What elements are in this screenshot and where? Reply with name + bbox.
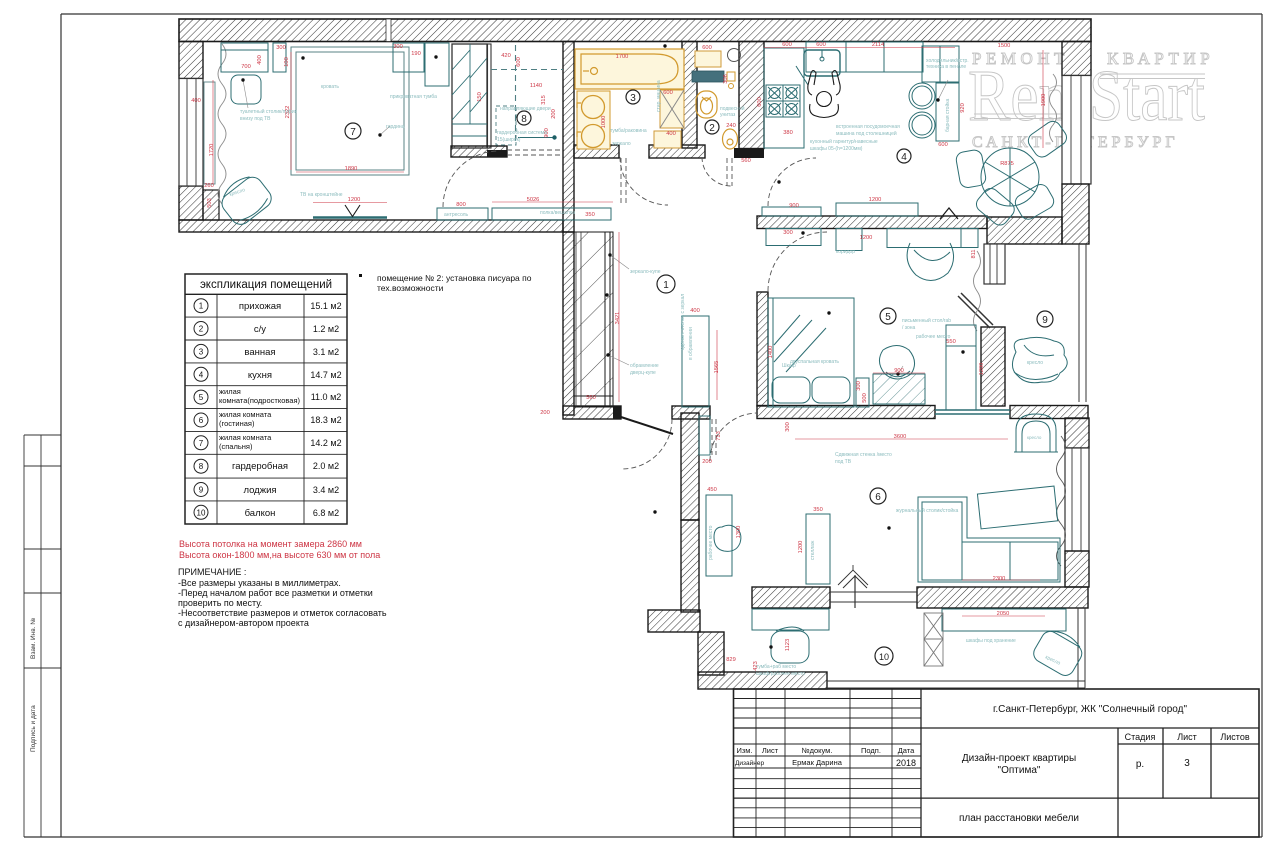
svg-text:Дата: Дата — [898, 746, 915, 755]
svg-text:3421: 3421 — [615, 312, 621, 325]
svg-text:560: 560 — [741, 158, 751, 164]
svg-text:1300: 1300 — [736, 526, 742, 539]
svg-text:3: 3 — [1184, 758, 1190, 769]
svg-text:300: 300 — [276, 45, 286, 51]
svg-text:260: 260 — [204, 183, 214, 189]
svg-text:план расстановки мебели: план расстановки мебели — [959, 812, 1079, 824]
svg-text:балкон: балкон — [245, 508, 276, 519]
svg-text:400: 400 — [191, 98, 201, 104]
svg-text:обрамление: обрамление — [630, 363, 659, 369]
svg-text:Взам. Инв. №: Взам. Инв. № — [30, 618, 37, 659]
svg-text:1500: 1500 — [998, 43, 1011, 49]
svg-text:600: 600 — [663, 90, 673, 96]
svg-text:проверить по месту.: проверить по месту. — [178, 598, 262, 608]
svg-text:2018: 2018 — [896, 758, 916, 768]
svg-text:350: 350 — [585, 212, 595, 218]
svg-text:рабочее место: рабочее место — [708, 525, 714, 560]
svg-text:306: 306 — [723, 74, 729, 84]
svg-text:туалетный столик/пуфик: туалетный столик/пуфик — [240, 108, 298, 115]
svg-text:300: 300 — [785, 422, 791, 432]
svg-text:Высота потолка на момент замер: Высота потолка на момент замера 2860 мм — [179, 539, 362, 549]
svg-text:кухонный гарнитур/навесные: кухонный гарнитур/навесные — [810, 138, 878, 145]
svg-text:5: 5 — [199, 393, 204, 402]
svg-text:барная стойка: барная стойка — [944, 98, 951, 132]
svg-text:помещение № 2: установка писуа: помещение № 2: установка писуара по — [377, 273, 532, 283]
svg-text:журнальный столик/стойка: журнальный столик/стойка — [896, 507, 959, 514]
svg-text:техника в пенале: техника в пенале — [926, 64, 966, 70]
svg-text:503: 503 — [207, 198, 213, 208]
svg-text:под ТВ: под ТВ — [835, 459, 852, 465]
svg-text:1720: 1720 — [209, 144, 215, 157]
svg-text:Лист: Лист — [1177, 732, 1197, 742]
svg-text:2.0 м2: 2.0 м2 — [313, 461, 339, 471]
svg-text:300: 300 — [783, 230, 793, 236]
svg-text:стеллаж: стеллаж — [810, 540, 816, 560]
svg-text:полка/вешалка: полка/вешалка — [540, 210, 575, 216]
svg-text:Подпись и дата: Подпись и дата — [30, 705, 37, 752]
svg-text:7: 7 — [350, 127, 356, 138]
svg-text:400: 400 — [257, 55, 263, 65]
svg-text:100: 100 — [284, 57, 290, 67]
svg-text:лоджия: лоджия — [243, 485, 276, 496]
svg-text:240: 240 — [726, 123, 736, 129]
svg-text:300: 300 — [856, 381, 862, 391]
svg-text:14.7 м2: 14.7 м2 — [310, 370, 341, 380]
svg-text:с/у: с/у — [254, 324, 266, 335]
svg-text:коридор: коридор — [836, 249, 855, 255]
svg-text:1200: 1200 — [869, 197, 882, 203]
svg-text:машина под столешницей: машина под столешницей — [836, 130, 897, 137]
svg-text:1200: 1200 — [860, 235, 873, 241]
svg-text:стир. машина: стир. машина — [656, 80, 662, 112]
svg-text:11.0 м2: 11.0 м2 — [311, 392, 342, 402]
svg-text:комната(подростковая): комната(подростковая) — [219, 396, 301, 405]
svg-text:Изм.: Изм. — [736, 746, 752, 755]
svg-text:600: 600 — [516, 57, 522, 67]
svg-text:350: 350 — [813, 507, 823, 513]
svg-text:3: 3 — [630, 93, 636, 104]
svg-text:шкаф/рабочее место: шкаф/рабочее место — [756, 671, 805, 677]
svg-text:1700: 1700 — [616, 54, 629, 60]
svg-text:-Перед началом работ все разме: -Перед началом работ все разметки и отме… — [178, 588, 373, 598]
svg-text:5: 5 — [885, 312, 891, 323]
svg-text:Сдвижная стенка /место: Сдвижная стенка /место — [835, 452, 892, 458]
svg-text:в обрамлении: в обрамлении — [688, 327, 694, 360]
svg-text:380: 380 — [783, 130, 793, 136]
svg-text:10: 10 — [197, 508, 206, 517]
svg-text:1400: 1400 — [768, 346, 774, 359]
svg-text:713: 713 — [716, 431, 722, 441]
svg-text:"Оптима": "Оптима" — [998, 765, 1041, 776]
svg-text:8: 8 — [199, 462, 204, 471]
svg-text:150: 150 — [477, 92, 483, 102]
svg-text:15(широк): 15(широк) — [497, 137, 521, 143]
svg-text:200: 200 — [540, 410, 550, 416]
svg-text:1900: 1900 — [1041, 94, 1047, 107]
svg-text:700: 700 — [241, 64, 251, 70]
svg-text:кресло: кресло — [1027, 435, 1042, 440]
svg-text:-Все размеры указаны в миллиме: -Все размеры указаны в миллиметрах. — [178, 578, 341, 588]
svg-text:шкафы под хранение: шкафы под хранение — [966, 638, 1016, 644]
svg-text:190: 190 — [411, 51, 421, 57]
svg-text:Дизайнер: Дизайнер — [735, 759, 764, 767]
svg-text:тех.возможности: тех.возможности — [377, 283, 444, 293]
svg-text:Подп.: Подп. — [861, 746, 881, 755]
svg-text:зеркало: зеркало — [612, 141, 631, 147]
svg-text:6.8 м2: 6.8 м2 — [313, 508, 339, 518]
svg-text:1123: 1123 — [785, 639, 791, 651]
svg-text:шкафы 05-(h=1200мм): шкафы 05-(h=1200мм) — [810, 146, 863, 152]
svg-text:прикроватная тумба: прикроватная тумба — [390, 94, 437, 100]
svg-text:дверц-купе: дверц-купе — [630, 370, 656, 376]
svg-text:1140: 1140 — [530, 83, 542, 89]
svg-text:1200: 1200 — [979, 363, 985, 376]
svg-text:420: 420 — [501, 53, 511, 59]
svg-text:жилая комната: жилая комната — [219, 410, 272, 419]
svg-text:600: 600 — [757, 97, 763, 107]
svg-text:р.: р. — [1136, 759, 1144, 770]
svg-text:подвесной: подвесной — [720, 105, 745, 112]
svg-text:унитаз: унитаз — [720, 112, 736, 118]
svg-text:кухня: кухня — [248, 370, 272, 381]
svg-text:315: 315 — [541, 95, 547, 105]
svg-text:рабочее место: рабочее место — [916, 334, 951, 340]
svg-text:9: 9 — [1042, 315, 1048, 326]
svg-text:жилая: жилая — [219, 387, 241, 396]
svg-text:Стадия: Стадия — [1125, 732, 1156, 742]
svg-text:8: 8 — [521, 114, 527, 125]
svg-text:600: 600 — [938, 142, 948, 148]
svg-text:9: 9 — [199, 486, 204, 495]
svg-text:10: 10 — [879, 652, 889, 662]
svg-text:№докум.: №докум. — [802, 746, 833, 755]
svg-text:1200: 1200 — [798, 541, 804, 554]
svg-text:900: 900 — [789, 203, 799, 209]
svg-text:1.2 м2: 1.2 м2 — [313, 324, 339, 334]
svg-text:2114: 2114 — [872, 42, 884, 48]
svg-text:400: 400 — [666, 131, 676, 137]
svg-text:1000: 1000 — [601, 116, 607, 129]
svg-text:Start: Start — [1089, 55, 1205, 136]
svg-text:Высота окон-1800 мм,на высоте: Высота окон-1800 мм,на высоте 630 мм от … — [179, 550, 380, 560]
svg-text:тумба/раковина: тумба/раковина — [610, 128, 647, 134]
svg-text:600: 600 — [782, 42, 792, 48]
svg-text:300: 300 — [393, 44, 403, 50]
svg-text:г.Санкт-Петербург, ЖК "Солнечн: г.Санкт-Петербург, ЖК "Солнечный город" — [993, 703, 1188, 715]
svg-text:зеркало-купе: зеркало-купе — [630, 269, 661, 275]
svg-text:3.4 м2: 3.4 м2 — [313, 485, 339, 495]
svg-text:с дизайнером-автором проекта: с дизайнером-автором проекта — [178, 618, 309, 628]
svg-text:сдвижн. стенка с зеркал: сдвижн. стенка с зеркал — [680, 294, 686, 350]
svg-text:800: 800 — [456, 202, 466, 208]
svg-text:3.1 м2: 3.1 м2 — [313, 347, 339, 357]
svg-text:двуспальная кровать: двуспальная кровать — [790, 359, 839, 365]
svg-text:500: 500 — [862, 393, 868, 403]
svg-text:6: 6 — [199, 416, 204, 425]
svg-text:/ зона: / зона — [902, 325, 916, 331]
svg-text:антресоль: антресоль — [444, 212, 469, 218]
svg-text:600: 600 — [702, 45, 712, 51]
svg-text:200: 200 — [702, 459, 712, 465]
svg-text:Лист: Лист — [762, 746, 779, 755]
svg-text:жилая комната: жилая комната — [219, 433, 272, 442]
svg-text:2: 2 — [709, 123, 715, 134]
svg-text:R875: R875 — [1000, 161, 1014, 167]
svg-text:(гостиная): (гостиная) — [219, 419, 255, 428]
svg-text:15.1 м2: 15.1 м2 — [310, 301, 341, 311]
svg-text:811: 811 — [971, 249, 977, 258]
svg-text:1200: 1200 — [348, 197, 361, 203]
svg-text:1890: 1890 — [345, 166, 358, 172]
svg-text:600: 600 — [816, 42, 826, 48]
svg-text:1: 1 — [663, 280, 669, 291]
svg-text:920: 920 — [960, 103, 966, 113]
svg-text:гардеробная система: гардеробная система — [497, 130, 547, 136]
svg-text:6: 6 — [875, 492, 881, 503]
svg-text:7: 7 — [199, 439, 204, 448]
svg-text:кровать: кровать — [321, 84, 339, 90]
svg-text:3: 3 — [199, 347, 204, 356]
svg-text:1: 1 — [199, 302, 204, 311]
svg-text:560: 560 — [586, 395, 596, 401]
svg-text:прихожая: прихожая — [239, 301, 281, 312]
svg-text:Дизайн-проект квартиры: Дизайн-проект квартиры — [962, 753, 1076, 764]
svg-text:тумба+раб место: тумба+раб место — [756, 664, 796, 670]
svg-text:ТВ на кронштейне: ТВ на кронштейне — [300, 191, 343, 198]
svg-text:18.3 м2: 18.3 м2 — [310, 415, 341, 425]
svg-text:14.2 м2: 14.2 м2 — [310, 438, 341, 448]
svg-text:Ермак Дарина: Ермак Дарина — [792, 758, 843, 767]
svg-text:2300: 2300 — [993, 576, 1006, 582]
svg-text:встроенная посудомоечная: встроенная посудомоечная — [836, 124, 900, 130]
svg-text:кресло: кресло — [1027, 360, 1043, 366]
svg-text:экспликация помещений: экспликация помещений — [200, 279, 332, 291]
svg-text:письменный стол/rab: письменный стол/rab — [902, 317, 951, 324]
svg-text:829: 829 — [726, 657, 736, 663]
svg-text:внизу под ТВ: внизу под ТВ — [240, 116, 271, 122]
svg-text:450: 450 — [707, 487, 717, 493]
svg-text:4: 4 — [199, 370, 204, 379]
svg-text:гардина: гардина — [386, 124, 405, 130]
svg-text:гардеробная: гардеробная — [232, 461, 288, 472]
svg-text:400: 400 — [690, 308, 700, 314]
svg-text:(спальня): (спальня) — [219, 442, 253, 451]
svg-text:Листов: Листов — [1220, 732, 1249, 742]
svg-text:2: 2 — [199, 325, 204, 334]
svg-text:ванная: ванная — [244, 347, 275, 358]
svg-text:-Несоответствие размеров и отм: -Несоответствие размеров и отметок согла… — [178, 608, 387, 618]
svg-text:200: 200 — [551, 109, 557, 119]
svg-text:ПРИМЕЧАНИЕ :: ПРИМЕЧАНИЕ : — [178, 567, 246, 577]
svg-text:4: 4 — [901, 152, 907, 163]
